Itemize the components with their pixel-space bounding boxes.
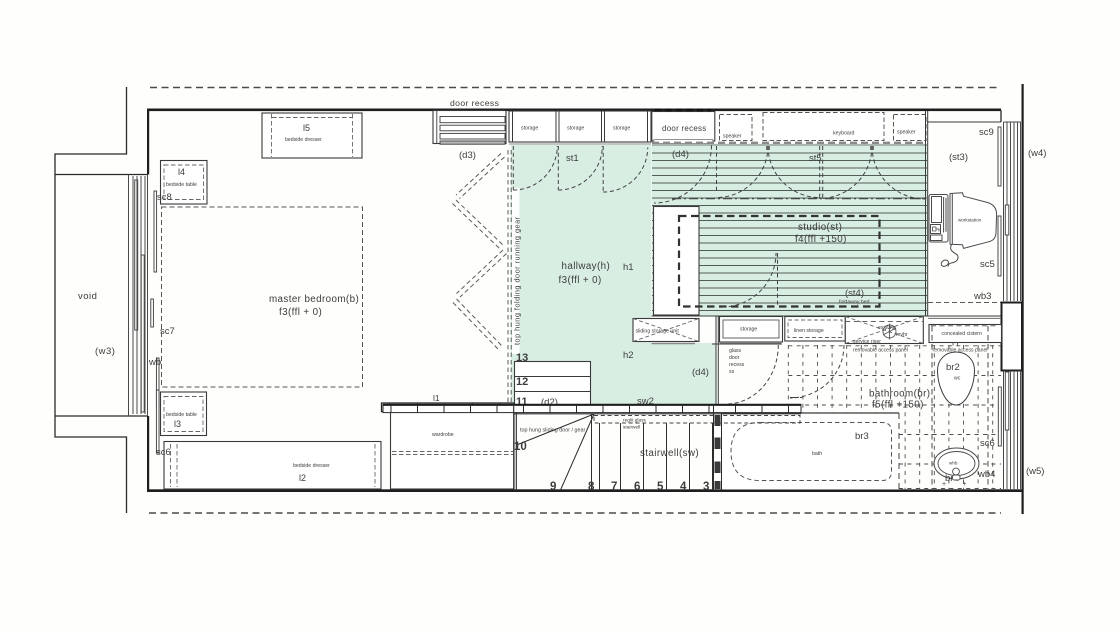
svg-text:mvhr: mvhr xyxy=(896,332,908,338)
svg-text:sc6: sc6 xyxy=(980,438,995,449)
svg-text:sc6: sc6 xyxy=(156,447,171,458)
svg-text:(d3): (d3) xyxy=(459,150,476,161)
svg-text:br2: br2 xyxy=(946,362,960,373)
svg-text:top hung folding door running: top hung folding door running gear xyxy=(513,216,522,345)
svg-text:(w3): (w3) xyxy=(95,346,115,357)
svg-text:f3(ffl + 0): f3(ffl + 0) xyxy=(559,275,602,286)
svg-text:studio(st): studio(st) xyxy=(798,222,842,233)
svg-text:h2: h2 xyxy=(623,350,634,361)
svg-text:sc5: sc5 xyxy=(980,259,995,270)
svg-text:l2: l2 xyxy=(299,473,306,483)
svg-text:speaker: speaker xyxy=(723,134,742,140)
svg-text:sc7: sc7 xyxy=(160,326,175,337)
svg-text:br3: br3 xyxy=(855,431,869,442)
svg-text:8: 8 xyxy=(588,481,595,493)
svg-text:wardrobe: wardrobe xyxy=(432,432,454,438)
svg-text:glass: glass xyxy=(729,348,742,354)
svg-text:storage: storage xyxy=(521,126,538,132)
svg-text:10: 10 xyxy=(514,441,527,453)
svg-text:(w5): (w5) xyxy=(1026,466,1044,477)
svg-text:st1: st1 xyxy=(566,153,579,164)
svg-text:stairwell: stairwell xyxy=(623,425,640,431)
svg-text:wb4: wb4 xyxy=(977,469,995,480)
svg-text:ss: ss xyxy=(729,369,735,375)
svg-text:f3(ffl + 0): f3(ffl + 0) xyxy=(279,307,322,318)
svg-text:whb: whb xyxy=(949,461,958,466)
svg-text:sc9: sc9 xyxy=(979,127,994,138)
svg-text:linen storage: linen storage xyxy=(794,328,824,334)
svg-text:void: void xyxy=(78,291,97,302)
svg-text:sc8: sc8 xyxy=(157,192,172,203)
svg-text:5: 5 xyxy=(657,481,664,493)
svg-text:st5: st5 xyxy=(809,153,822,164)
svg-text:(d4): (d4) xyxy=(692,367,709,378)
svg-text:reglit glass: reglit glass xyxy=(623,418,647,424)
svg-text:l1: l1 xyxy=(433,393,440,403)
svg-text:wb3: wb3 xyxy=(973,291,991,302)
svg-text:l5: l5 xyxy=(303,123,310,133)
svg-text:6: 6 xyxy=(634,481,640,493)
svg-text:door: door xyxy=(729,355,740,361)
svg-text:wc: wc xyxy=(954,376,961,382)
svg-text:+: + xyxy=(942,481,946,488)
svg-text:bathroom(br): bathroom(br) xyxy=(869,389,930,400)
svg-text:door recess: door recess xyxy=(662,124,707,133)
svg-text:13: 13 xyxy=(516,352,528,364)
svg-text:service riser: service riser xyxy=(853,339,881,345)
svg-text:7: 7 xyxy=(611,481,617,493)
svg-text:speaker: speaker xyxy=(897,130,916,136)
svg-text:f4(ffl +150): f4(ffl +150) xyxy=(795,234,847,245)
svg-text:+: + xyxy=(963,481,967,488)
svg-text:(st4): (st4) xyxy=(845,288,864,299)
svg-text:storage: storage xyxy=(567,126,584,132)
svg-text:12: 12 xyxy=(516,376,528,388)
svg-text:existing: existing xyxy=(878,325,896,331)
svg-text:bedside dresser: bedside dresser xyxy=(293,463,330,469)
svg-text:master bedroom(b): master bedroom(b) xyxy=(269,294,359,305)
svg-text:bedside table: bedside table xyxy=(166,182,197,188)
svg-text:bedside dresser: bedside dresser xyxy=(285,137,322,143)
svg-text:door recess: door recess xyxy=(450,98,499,108)
svg-text:(w4): (w4) xyxy=(1028,148,1046,159)
svg-text:bath: bath xyxy=(812,451,822,457)
svg-text:(st3): (st3) xyxy=(949,152,968,163)
svg-text:storage: storage xyxy=(740,327,757,333)
svg-text:h1: h1 xyxy=(623,262,634,273)
svg-text:storage: storage xyxy=(613,126,630,132)
svg-text:9: 9 xyxy=(550,481,556,493)
svg-text:keyboard: keyboard xyxy=(833,131,854,137)
svg-text:concealed cistern: concealed cistern xyxy=(942,331,982,337)
svg-text:bedside table: bedside table xyxy=(166,412,197,418)
svg-text:l3: l3 xyxy=(174,419,181,429)
svg-text:sliding storage unit: sliding storage unit xyxy=(636,329,680,335)
svg-text:wb: wb xyxy=(148,357,161,368)
svg-text:3: 3 xyxy=(703,481,709,493)
svg-text:4: 4 xyxy=(680,481,687,493)
svg-text:hallway(h): hallway(h) xyxy=(562,261,611,272)
svg-text:recess: recess xyxy=(729,362,745,368)
svg-text:foldaway bed: foldaway bed xyxy=(839,300,870,306)
svg-text:stairwell(sw): stairwell(sw) xyxy=(640,448,699,459)
svg-text:workstation: workstation xyxy=(958,218,982,223)
svg-text:l4: l4 xyxy=(178,167,185,177)
svg-text:(d4): (d4) xyxy=(672,149,689,160)
svg-text:f5(ffl +150): f5(ffl +150) xyxy=(872,400,924,411)
